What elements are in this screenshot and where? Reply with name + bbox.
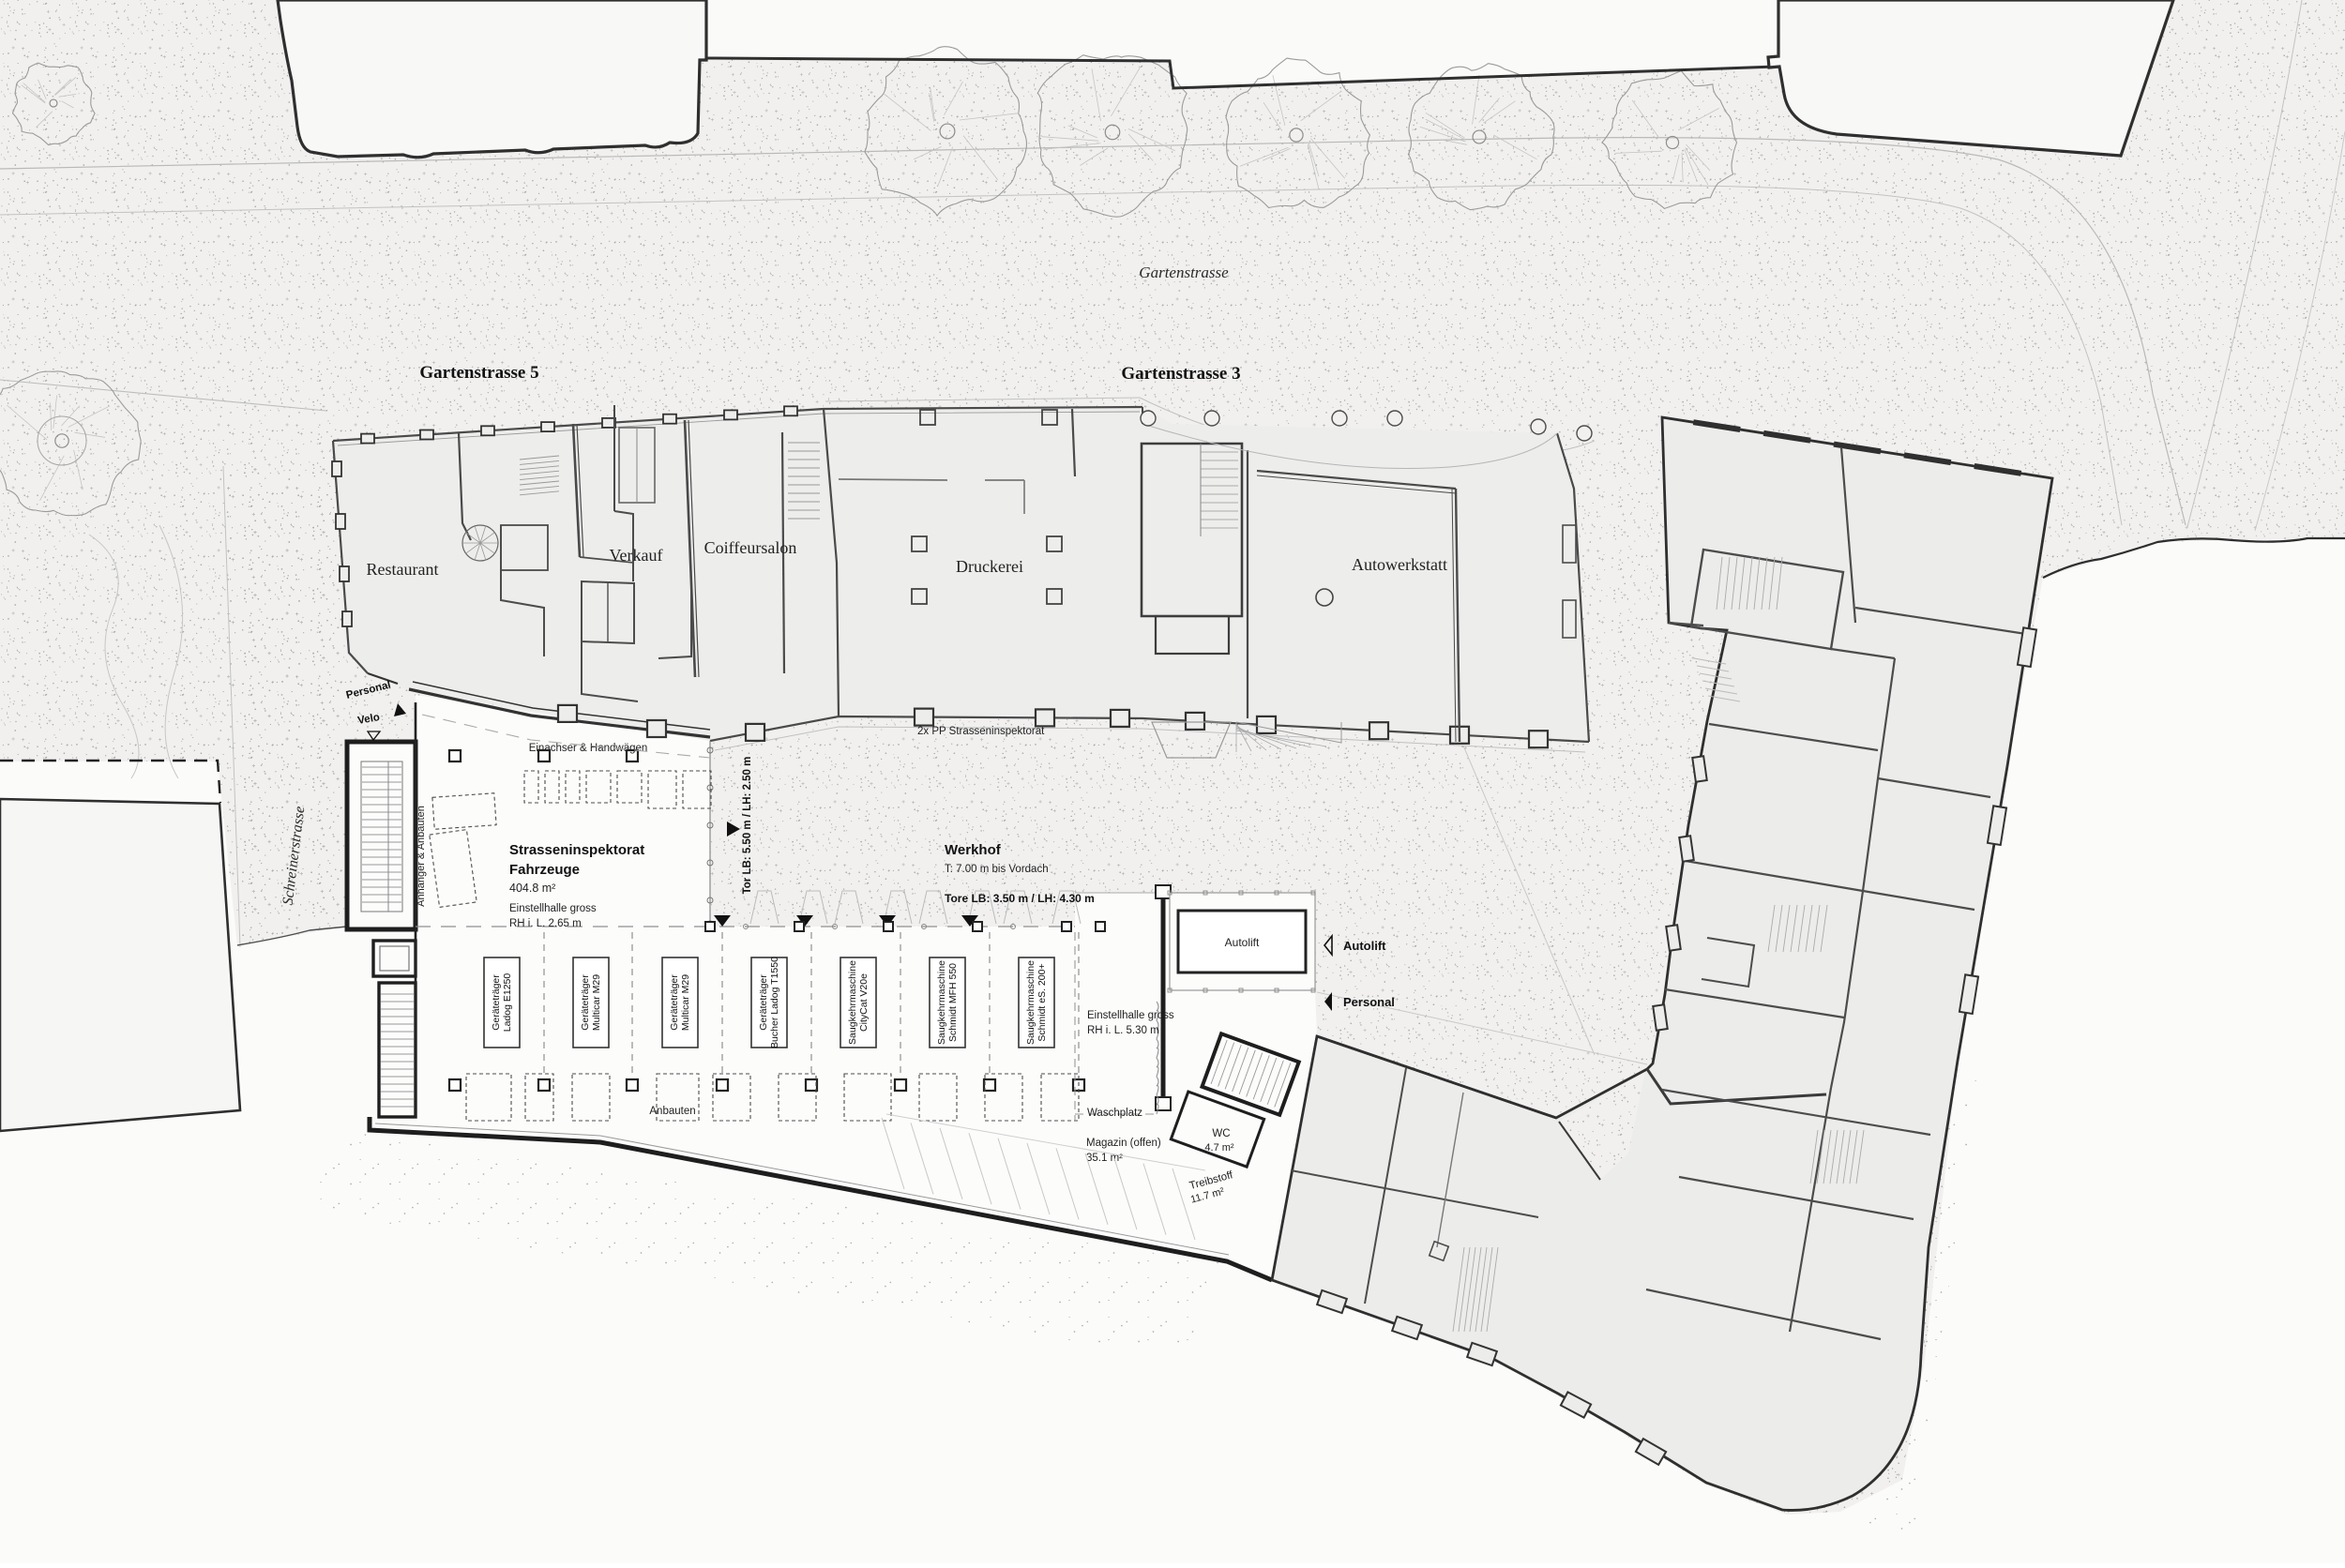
svg-text:WC: WC [1212,1128,1230,1139]
svg-text:Gartenstrasse 5: Gartenstrasse 5 [419,363,538,383]
svg-text:Fahrzeuge: Fahrzeuge [509,862,580,878]
svg-text:Restaurant: Restaurant [367,560,439,579]
svg-text:T: 7.00 m bis Vordach: T: 7.00 m bis Vordach [945,864,1049,875]
svg-text:Geräteträger: Geräteträger [491,974,502,1031]
svg-text:Druckerei: Druckerei [956,557,1023,576]
svg-text:Tor LB: 5.50 m / LH: 2.50 m: Tor LB: 5.50 m / LH: 2.50 m [742,757,753,895]
svg-text:2x PP Strasseninspektorat: 2x PP Strasseninspektorat [917,726,1045,737]
svg-text:Autolift: Autolift [1343,939,1386,953]
svg-text:Gartenstrasse: Gartenstrasse [1139,264,1229,281]
svg-text:Einstellhalle gross: Einstellhalle gross [509,903,597,914]
svg-text:Saugkehrmaschine: Saugkehrmaschine [847,960,858,1045]
svg-text:CityCat V20e: CityCat V20e [858,973,870,1032]
svg-text:Geräteträger: Geräteträger [580,974,591,1031]
svg-text:Einstellhalle gross: Einstellhalle gross [1087,1010,1174,1021]
svg-text:Anhänger & Anbauten: Anhänger & Anbauten [416,806,427,907]
svg-text:35.1 m²: 35.1 m² [1086,1153,1123,1164]
svg-text:Bucher Ladog T1550: Bucher Ladog T1550 [769,957,780,1048]
svg-text:Gartenstrasse 3: Gartenstrasse 3 [1121,364,1240,384]
svg-text:Geräteträger: Geräteträger [669,974,680,1031]
svg-text:Autolift: Autolift [1225,936,1260,949]
svg-text:Waschplatz: Waschplatz [1087,1108,1142,1119]
svg-text:Multicar M29: Multicar M29 [591,974,602,1031]
svg-text:Saugkehrmaschine: Saugkehrmaschine [1025,960,1036,1045]
svg-text:Ladog E1250: Ladog E1250 [502,973,513,1033]
svg-text:Verkauf: Verkauf [610,546,663,565]
svg-text:4.7 m²: 4.7 m² [1204,1142,1234,1153]
svg-text:Autowerkstatt: Autowerkstatt [1352,555,1447,574]
svg-text:Werkhof: Werkhof [945,842,1002,858]
svg-text:RH i. L. 2.65 m: RH i. L. 2.65 m [509,918,582,929]
svg-text:RH i. L. 5.30 m: RH i. L. 5.30 m [1087,1025,1159,1036]
svg-text:Strasseninspektorat: Strasseninspektorat [509,842,644,858]
svg-text:Schmidt eS. 200+: Schmidt eS. 200+ [1036,963,1048,1041]
svg-text:Geräteträger: Geräteträger [758,974,769,1031]
svg-text:Magazin (offen): Magazin (offen) [1086,1138,1161,1149]
svg-text:404.8 m²: 404.8 m² [509,882,555,895]
svg-text:Coiffeursalon: Coiffeursalon [704,538,797,557]
svg-text:Multicar M29: Multicar M29 [680,974,691,1031]
svg-text:Personal: Personal [1343,995,1395,1009]
svg-text:Tore LB: 3.50 m / LH: 4.30 m: Tore LB: 3.50 m / LH: 4.30 m [945,892,1095,905]
svg-text:Einachser & Handwägen: Einachser & Handwägen [529,743,648,754]
svg-text:Schmidt MFH 550: Schmidt MFH 550 [947,963,959,1042]
svg-text:Saugkehrmaschine: Saugkehrmaschine [936,960,947,1045]
svg-text:Anbauten: Anbauten [649,1106,695,1117]
